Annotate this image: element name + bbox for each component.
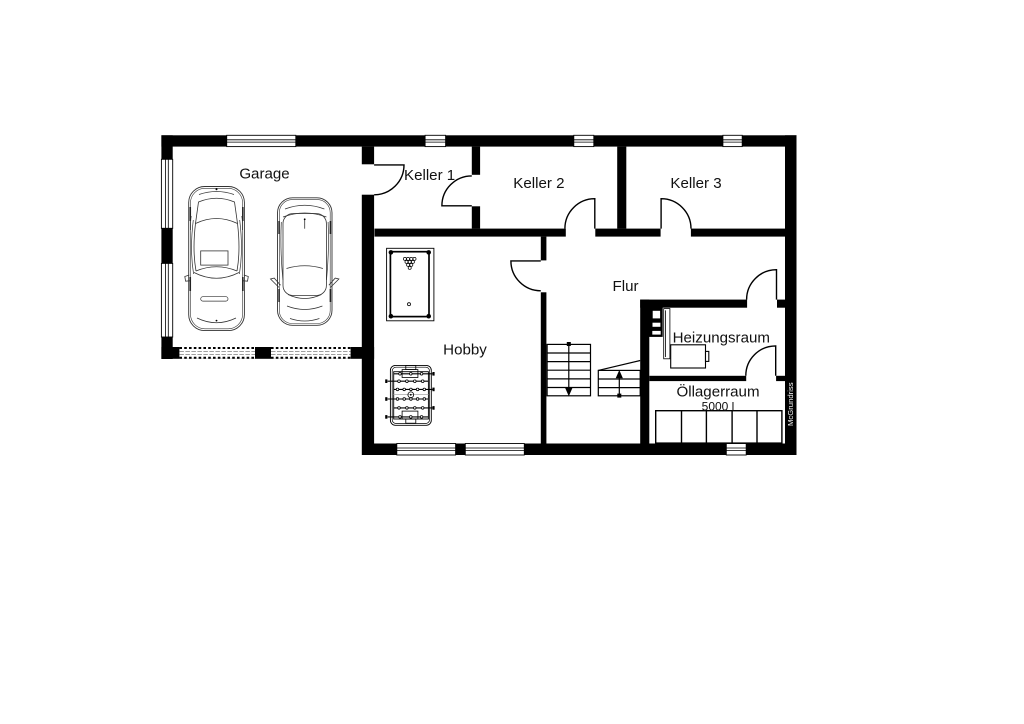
svg-text:Keller 3: Keller 3 (670, 175, 721, 192)
svg-text:Flur: Flur (613, 278, 639, 295)
svg-text:Heizungsraum: Heizungsraum (673, 329, 770, 346)
svg-text:5000 l: 5000 l (702, 400, 735, 414)
svg-text:Öllagerraum: Öllagerraum (676, 383, 759, 401)
svg-text:Keller 2: Keller 2 (513, 175, 564, 192)
svg-text:Garage: Garage (239, 166, 289, 183)
svg-text:Keller 1: Keller 1 (404, 167, 455, 184)
svg-text:Hobby: Hobby (443, 342, 487, 359)
svg-text:McGrundriss: McGrundriss (786, 382, 795, 426)
